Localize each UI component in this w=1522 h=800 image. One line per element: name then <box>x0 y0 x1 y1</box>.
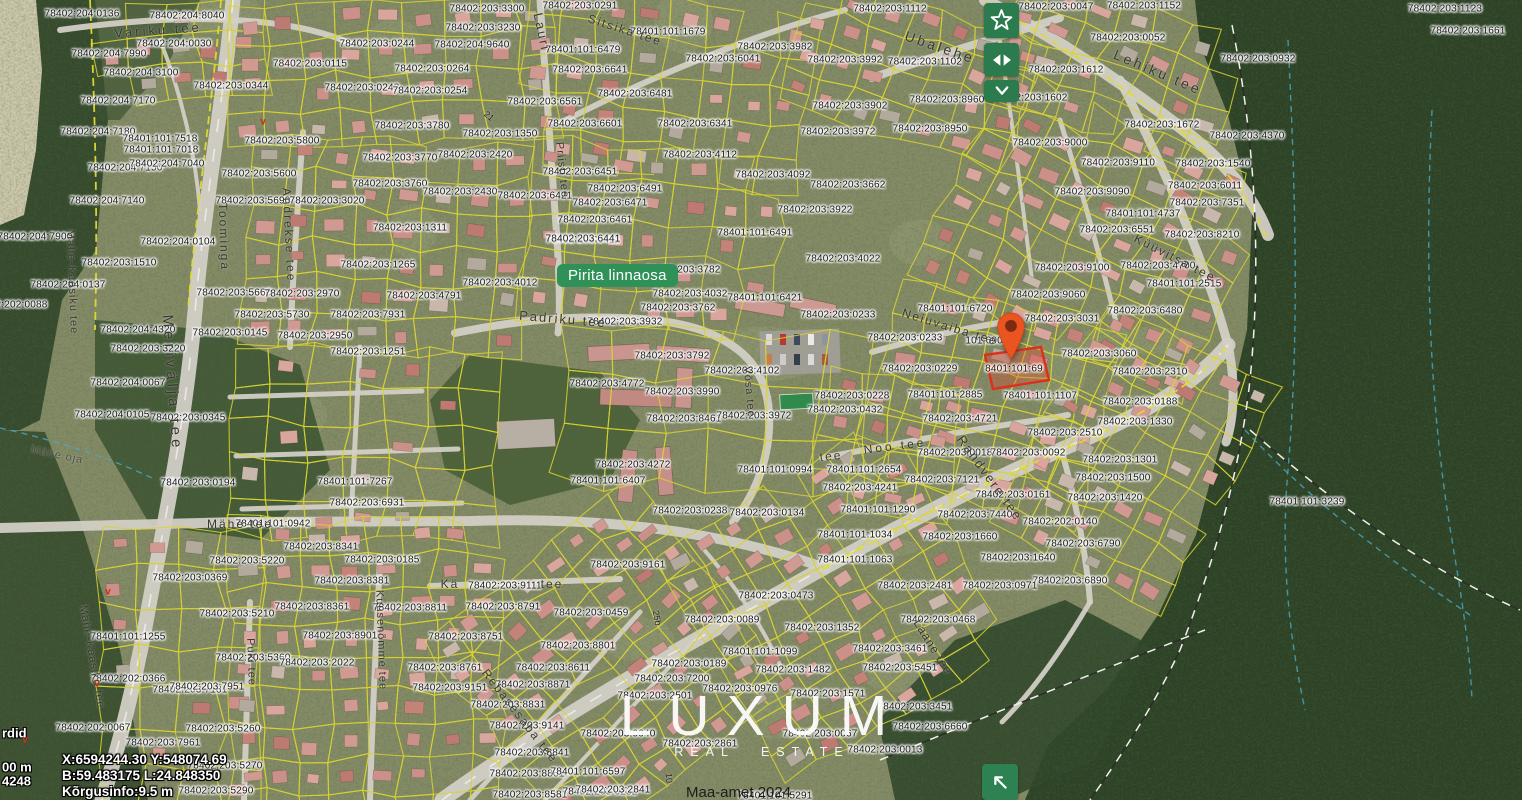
map-attribution: Maa-amet 2024 <box>686 784 791 800</box>
aerial-map-canvas[interactable] <box>0 0 1522 800</box>
coordinate-xy: X:6594244.30 Y:548074.69 <box>62 752 227 768</box>
chevron-down-icon <box>989 84 1015 98</box>
favorites-button[interactable] <box>984 3 1019 38</box>
arrow-up-left-icon <box>987 769 1013 795</box>
selected-parcel-label: 8401:101:69 <box>985 364 1043 375</box>
compare-button[interactable] <box>984 43 1019 76</box>
map-viewport[interactable]: 78402:204:013678402:204:804078402:204:00… <box>0 0 1522 800</box>
compare-arrows-icon <box>989 49 1015 71</box>
district-badge: Pirita linnaosa <box>557 264 678 287</box>
coordinates-panel: X:6594244.30 Y:548074.69 B:59.483175 L:2… <box>62 752 227 800</box>
collapse-toolbar-button[interactable] <box>984 80 1019 102</box>
watermark-brand: LUXUM <box>620 683 905 749</box>
elevation-info: Kõrgusinfo:9.5 m <box>62 784 227 800</box>
coordinate-bl: B:59.483175 L:24.848350 <box>62 768 227 784</box>
watermark-tagline: REAL ESTATE <box>674 745 849 759</box>
pan-to-selection-button[interactable] <box>982 764 1018 800</box>
star-icon <box>989 8 1014 33</box>
